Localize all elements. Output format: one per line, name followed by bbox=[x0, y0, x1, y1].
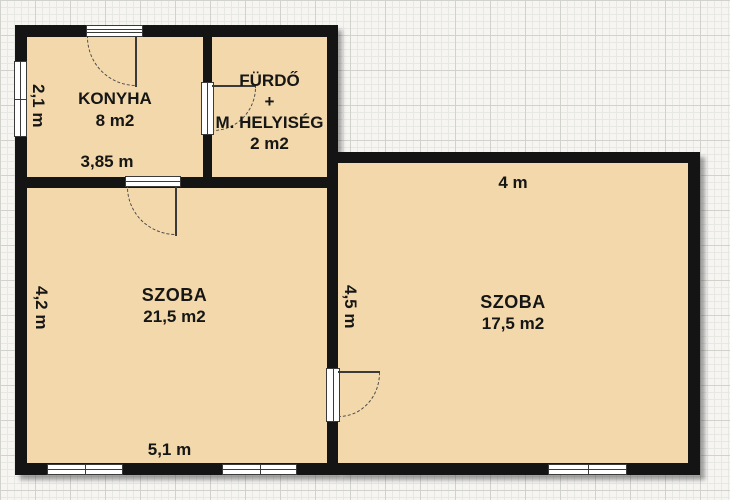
floorplan-canvas: KONYHA 8 m2 FÜRDŐ + M. HELYISÉG 2 m2 SZO… bbox=[0, 0, 730, 500]
dim-konyha-width: 3,85 m bbox=[27, 152, 187, 172]
window-divider bbox=[588, 465, 589, 474]
door-frame-line bbox=[126, 181, 180, 182]
label-szoba-right: SZOBA 17,5 m2 bbox=[338, 291, 688, 335]
wall-right bbox=[688, 152, 700, 475]
dim-szoba-left-height: 4,2 m bbox=[31, 286, 51, 329]
room-name: SZOBA bbox=[338, 291, 688, 313]
window-bottom-2-symbol bbox=[222, 464, 297, 475]
dim-szoba-left-width: 5,1 m bbox=[27, 440, 312, 460]
room-name: KONYHA bbox=[27, 88, 203, 110]
window-bottom-3-symbol bbox=[548, 464, 627, 475]
label-furdo: FÜRDŐ + M. HELYISÉG 2 m2 bbox=[209, 70, 330, 154]
window-left-symbol bbox=[14, 61, 27, 137]
wall-top bbox=[15, 25, 337, 37]
label-szoba-left: SZOBA 21,5 m2 bbox=[27, 284, 322, 328]
room-area: 21,5 m2 bbox=[27, 306, 322, 328]
window-divider bbox=[15, 99, 26, 100]
dim-szoba-right-width: 4 m bbox=[338, 173, 688, 193]
label-konyha: KONYHA 8 m2 bbox=[27, 88, 203, 132]
door-frame-line bbox=[333, 369, 334, 421]
room-name-plus: + bbox=[209, 91, 330, 112]
room-name-2: M. HELYISÉG bbox=[209, 112, 330, 133]
room-area: 8 m2 bbox=[27, 110, 203, 132]
room-area: 2 m2 bbox=[209, 133, 330, 154]
szoba-door-frame bbox=[326, 368, 340, 422]
window-divider bbox=[85, 465, 86, 474]
entrance-door-frame bbox=[86, 25, 143, 37]
room-area: 17,5 m2 bbox=[338, 313, 688, 335]
room-name: FÜRDŐ bbox=[209, 70, 330, 91]
door-frame-line bbox=[87, 32, 142, 33]
dim-szoba-right-height: 4,5 m bbox=[340, 285, 360, 328]
door-frame-line bbox=[207, 83, 208, 134]
door-frame-line bbox=[87, 29, 142, 30]
window-divider bbox=[260, 465, 261, 474]
dim-konyha-height: 2,1 m bbox=[28, 84, 48, 127]
room-name: SZOBA bbox=[27, 284, 322, 306]
konyha-door-frame bbox=[125, 176, 181, 187]
wall-top-right bbox=[337, 152, 700, 163]
window-bottom-1-symbol bbox=[47, 464, 123, 475]
